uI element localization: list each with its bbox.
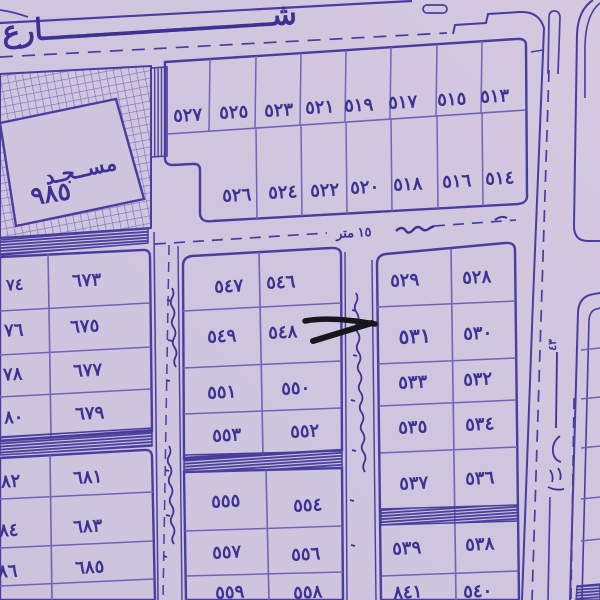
svg-text:٥٤٠: ٥٤٠ [463, 580, 493, 600]
svg-text:٦٨١: ٦٨١ [73, 466, 103, 487]
svg-text:٤٣: ٤٣ [547, 339, 559, 351]
svg-text:٥٥٢: ٥٥٢ [290, 420, 320, 442]
svg-text:٥١٥: ٥١٥ [437, 88, 467, 109]
svg-text:٥١٦: ٥١٦ [442, 170, 472, 192]
svg-text:٥٢٤: ٥٢٤ [268, 181, 298, 202]
svg-text:٥٢٣: ٥٢٣ [264, 99, 294, 121]
svg-text:٦٧٣: ٦٧٣ [72, 269, 102, 291]
svg-text:٥٤٩: ٥٤٩ [207, 325, 237, 347]
svg-text:٧٦: ٧٦ [3, 319, 25, 340]
svg-text:٥٢٠: ٥٢٠ [350, 176, 380, 197]
svg-text:٥٣٧: ٥٣٧ [399, 472, 429, 494]
svg-text:٥٥٩: ٥٥٩ [215, 581, 245, 600]
svg-text:٥٣٣: ٥٣٣ [398, 371, 428, 393]
svg-text:٨٤١: ٨٤١ [392, 581, 423, 600]
svg-text:٥٢٩: ٥٢٩ [390, 269, 420, 291]
svg-text:٦٧٧: ٦٧٧ [73, 359, 103, 381]
svg-text:٥١٤: ٥١٤ [485, 167, 515, 188]
svg-text:٥٢٧: ٥٢٧ [173, 104, 203, 126]
svg-text:٥٢٢: ٥٢٢ [310, 179, 340, 201]
svg-text:٥١٣: ٥١٣ [480, 85, 510, 107]
svg-text:٥٣١: ٥٣١ [398, 325, 431, 349]
svg-text:٨٠: ٨٠ [3, 407, 24, 428]
svg-text:٥٢١: ٥٢١ [305, 96, 335, 117]
svg-text:٥٣٥: ٥٣٥ [398, 416, 428, 437]
svg-text:٥١٩: ٥١٩ [344, 94, 374, 116]
svg-text:٥٣٩: ٥٣٩ [392, 537, 422, 559]
svg-text:٥٥٦: ٥٥٦ [291, 543, 321, 565]
svg-text:٦٧٥: ٦٧٥ [70, 315, 100, 336]
svg-text:٦٨٣: ٦٨٣ [73, 515, 103, 537]
svg-text:٥٢٦: ٥٢٦ [222, 184, 252, 206]
svg-text:٥٣٨: ٥٣٨ [465, 533, 495, 555]
svg-text:١٥ متر: ١٥ متر [335, 224, 372, 242]
svg-text:٥٥٨: ٥٥٨ [293, 581, 323, 600]
svg-text:٨٢: ٨٢ [0, 470, 21, 491]
svg-text:٥٣٠: ٥٣٠ [463, 322, 493, 343]
svg-text:٨٦: ٨٦ [0, 560, 18, 581]
svg-text:٥٥٥: ٥٥٥ [211, 490, 241, 511]
svg-text:٥٣٢: ٥٣٢ [463, 368, 493, 390]
svg-text:٥١٨: ٥١٨ [393, 173, 423, 195]
svg-text:٨٤: ٨٤ [0, 520, 19, 541]
svg-text:٥٢٨: ٥٢٨ [462, 266, 492, 288]
svg-text:٥٥٠: ٥٥٠ [281, 377, 311, 398]
svg-text:٥٥٧: ٥٥٧ [212, 541, 242, 563]
svg-text:٧٨: ٧٨ [2, 363, 24, 384]
svg-text:٦٨٥: ٦٨٥ [75, 556, 105, 577]
svg-text:٥٣٦: ٥٣٦ [465, 467, 495, 489]
svg-text:٥٢٥: ٥٢٥ [219, 101, 249, 122]
svg-text:٥٥١: ٥٥١ [207, 381, 237, 402]
svg-text:٧٤: ٧٤ [5, 277, 24, 295]
svg-text:٥٥٣: ٥٥٣ [212, 424, 242, 446]
svg-text:٥٣٤: ٥٣٤ [465, 413, 495, 434]
svg-text:٦٧٩: ٦٧٩ [75, 402, 105, 424]
svg-text:٥٤٦: ٥٤٦ [266, 271, 296, 293]
svg-text:٥٥٤: ٥٥٤ [293, 494, 323, 515]
svg-text:٥٤٨: ٥٤٨ [268, 321, 298, 343]
svg-text:٥١٧: ٥١٧ [388, 91, 418, 113]
svg-text:٥٤٧: ٥٤٧ [214, 275, 244, 297]
